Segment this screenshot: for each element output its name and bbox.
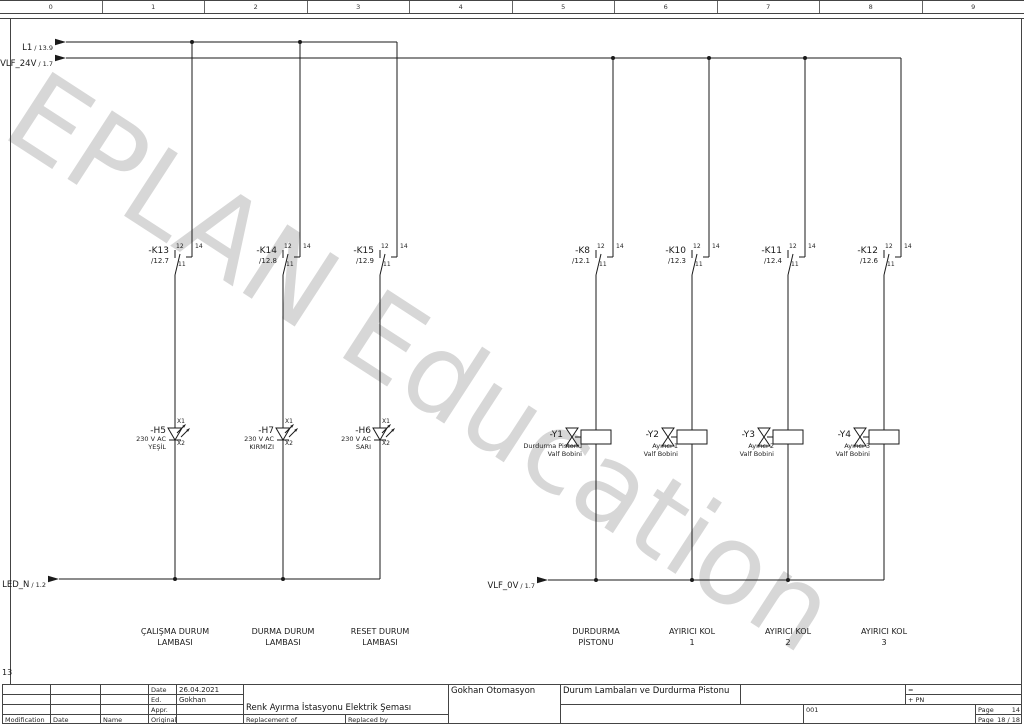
ruler-segment: 5 xyxy=(513,1,616,13)
valve-y1: -Y1 Durdurma Pistonu Valf Bobini xyxy=(493,429,603,465)
revision-cell xyxy=(100,684,148,694)
frame-top-line xyxy=(0,18,1024,19)
ruler-number: 8 xyxy=(869,3,873,11)
terminal-x2: X2 xyxy=(177,440,185,447)
valve-function-line2: Valf Bobini xyxy=(781,451,870,459)
company-name: Gokhan Otomasyon xyxy=(448,684,560,724)
function-label-reset: RESET DURUM LAMBASI xyxy=(310,626,450,648)
cross-reference: /12.9 xyxy=(300,257,374,265)
ed-label: Ed. xyxy=(148,694,176,704)
device-tag: -K14 xyxy=(203,247,277,256)
device-tag: -K15 xyxy=(300,247,374,256)
terminal-12: 12 xyxy=(597,243,605,250)
function-line2: 3 xyxy=(814,637,954,648)
terminal-11: 11 xyxy=(286,261,294,268)
original-label: Original xyxy=(148,714,176,724)
ruler-segment: 6 xyxy=(615,1,718,13)
page-value: 14 xyxy=(1012,706,1020,714)
potential-ref: / 1.2 xyxy=(31,581,46,589)
function-line1: AYIRICI KOL xyxy=(814,626,954,637)
ruler-segment: 9 xyxy=(923,1,1024,13)
valve-function-line2: Valf Bobini xyxy=(685,451,774,459)
lamp-label-block: -H7 230 V AC KIRMIZI xyxy=(204,426,274,451)
sheet-number: 001 xyxy=(803,704,975,724)
lamp-h5: -H5 230 V AC YEŞİL X1 X2 xyxy=(96,418,206,458)
contact-k14: -K14 /12.8 12 14 11 xyxy=(203,243,313,283)
ruler-segment: 3 xyxy=(308,1,411,13)
lamp-color: SARI xyxy=(301,444,371,452)
date-header: Date xyxy=(50,714,100,724)
drawing-title: Durum Lambaları ve Durdurma Pistonu xyxy=(560,684,740,704)
replaced-by-label: Replaced by xyxy=(345,714,448,724)
eplan-watermark: EPLAN Education xyxy=(0,48,858,678)
device-tag: -K12 xyxy=(804,247,878,256)
revision-cell xyxy=(100,704,148,714)
original-value xyxy=(176,714,243,724)
appr-value xyxy=(176,704,243,714)
ruler-number: 4 xyxy=(459,3,463,11)
potential-name: VLF_24V xyxy=(0,59,36,69)
ed-value: Gokhan xyxy=(176,694,243,704)
cross-reference: /12.7 xyxy=(95,257,169,265)
cross-reference: /12.6 xyxy=(804,257,878,265)
terminal-11: 11 xyxy=(887,261,895,268)
terminal-11: 11 xyxy=(383,261,391,268)
empty-cell xyxy=(560,704,805,724)
cross-reference: /12.4 xyxy=(708,257,782,265)
terminal-x1: X1 xyxy=(382,418,390,425)
valve-function: Ayırıcı 3 Valf Bobini xyxy=(781,443,870,458)
rail-label-ledn: LED_N/ 1.2 xyxy=(0,572,46,591)
revision-cell xyxy=(100,694,148,704)
valve-y2: -Y2 Ayırıcı 1 Valf Bobini xyxy=(589,429,699,465)
page-label: Page xyxy=(978,716,994,724)
terminal-12: 12 xyxy=(885,243,893,250)
appr-label: Appr. xyxy=(148,704,176,714)
lamp-label-block: -H6 230 V AC SARI xyxy=(301,426,371,451)
ruler-number: 1 xyxy=(151,3,155,11)
frame-right-line xyxy=(1021,18,1022,684)
eplan-schematic-page: EPLAN Education 0 1 2 3 4 5 6 7 8 9 xyxy=(0,0,1024,724)
contact-k15: -K15 /12.9 12 14 11 xyxy=(300,243,410,283)
terminal-11: 11 xyxy=(695,261,703,268)
terminal-14: 14 xyxy=(904,243,912,250)
ruler-segment: 4 xyxy=(410,1,513,13)
device-tag: -Y1 xyxy=(493,430,563,440)
column-ruler: 0 1 2 3 4 5 6 7 8 9 xyxy=(0,0,1024,14)
structure-eq: = xyxy=(905,684,1022,694)
terminal-11: 11 xyxy=(599,261,607,268)
device-tag: -K13 xyxy=(95,247,169,256)
revision-cell xyxy=(50,684,100,694)
page-nav-number: 13 xyxy=(2,668,12,677)
function-label-ayirici3: AYIRICI KOL 3 xyxy=(814,626,954,648)
contact-k10: -K10 /12.3 12 14 11 xyxy=(612,243,722,283)
date-label: Date xyxy=(148,684,176,694)
wires xyxy=(59,42,901,580)
cross-reference: /12.1 xyxy=(516,257,590,265)
device-tag: -Y4 xyxy=(781,430,851,440)
terminal-14: 14 xyxy=(400,243,408,250)
device-tag: -K8 xyxy=(516,247,590,256)
terminal-x2: X2 xyxy=(382,440,390,447)
page-total-value: 18 / 18 xyxy=(997,716,1020,724)
contact-k11: -K11 /12.4 12 14 11 xyxy=(708,243,818,283)
valve-y3: -Y3 Ayırıcı 2 Valf Bobini xyxy=(685,429,795,465)
potential-ref: / 1.7 xyxy=(520,582,535,590)
terminal-12: 12 xyxy=(789,243,797,250)
valve-function-line2: Valf Bobini xyxy=(589,451,678,459)
ruler-number: 7 xyxy=(766,3,770,11)
lamp-h6: -H6 230 V AC SARI X1 X2 xyxy=(301,418,411,458)
modification-header: Modification xyxy=(2,714,50,724)
structure-plus: + PN xyxy=(905,694,1022,704)
ruler-segment: 1 xyxy=(103,1,206,13)
ruler-segment: 2 xyxy=(205,1,308,13)
rail-label-vlf24v: VLF_24V/ 1.7 xyxy=(0,51,53,70)
potential-name: LED_N xyxy=(2,580,29,590)
ruler-number: 0 xyxy=(49,3,53,11)
ruler-number: 9 xyxy=(971,3,975,11)
terminal-x1: X1 xyxy=(285,418,293,425)
cross-reference: /12.3 xyxy=(612,257,686,265)
terminal-11: 11 xyxy=(178,261,186,268)
page-cell: Page 14 xyxy=(975,704,1022,714)
device-tag: -K10 xyxy=(612,247,686,256)
ruler-number: 5 xyxy=(561,3,565,11)
replacement-of-label: Replacement of xyxy=(243,714,345,724)
title-block: Date 26.04.2021 Renk Ayırma İstasyonu El… xyxy=(2,684,1022,724)
revision-cell xyxy=(50,694,100,704)
lamp-h7: -H7 230 V AC KIRMIZI X1 X2 xyxy=(204,418,314,458)
rail-label-vlf0v: VLF_0V/ 1.7 xyxy=(459,573,535,592)
revision-cell xyxy=(50,704,100,714)
contact-k13: -K13 /12.7 12 14 11 xyxy=(95,243,205,283)
function-line2: LAMBASI xyxy=(310,637,450,648)
valve-function: Durdurma Pistonu Valf Bobini xyxy=(493,443,582,458)
page-label: Page xyxy=(978,706,994,714)
contact-k12: -K12 /12.6 12 14 11 xyxy=(804,243,914,283)
revision-cell xyxy=(2,704,50,714)
ruler-segment: 8 xyxy=(820,1,923,13)
device-tag: -K11 xyxy=(708,247,782,256)
page-total-cell: Page 18 / 18 xyxy=(975,714,1022,724)
potential-name: VLF_0V xyxy=(487,581,518,591)
empty-cell xyxy=(740,684,905,704)
terminal-12: 12 xyxy=(693,243,701,250)
lamp-color: YEŞİL xyxy=(96,444,166,452)
date-value: 26.04.2021 xyxy=(176,684,243,694)
function-line1: RESET DURUM xyxy=(310,626,450,637)
ruler-number: 3 xyxy=(356,3,360,11)
contact-k8: -K8 /12.1 12 14 11 xyxy=(516,243,626,283)
ruler-number: 6 xyxy=(664,3,668,11)
device-tag: -Y2 xyxy=(589,430,659,440)
valve-function-line2: Valf Bobini xyxy=(493,451,582,459)
ruler-segment: 0 xyxy=(0,1,103,13)
valve-function: Ayırıcı 1 Valf Bobini xyxy=(589,443,678,458)
cross-reference: /12.8 xyxy=(203,257,277,265)
terminal-14: 14 xyxy=(195,243,203,250)
terminal-12: 12 xyxy=(176,243,184,250)
valve-y4: -Y4 Ayırıcı 3 Valf Bobini xyxy=(781,429,891,465)
potential-ref: / 1.7 xyxy=(38,60,53,68)
revision-cell xyxy=(2,684,50,694)
name-header: Name xyxy=(100,714,148,724)
ruler-segment: 7 xyxy=(718,1,821,13)
ruler-number: 2 xyxy=(254,3,258,11)
lamp-label-block: -H5 230 V AC YEŞİL xyxy=(96,426,166,451)
terminal-x1: X1 xyxy=(177,418,185,425)
valve-function: Ayırıcı 2 Valf Bobini xyxy=(685,443,774,458)
terminal-12: 12 xyxy=(284,243,292,250)
device-tag: -Y3 xyxy=(685,430,755,440)
lamp-color: KIRMIZI xyxy=(204,444,274,452)
revision-cell xyxy=(2,694,50,704)
project-title: Renk Ayırma İstasyonu Elektrik Şeması xyxy=(243,684,448,714)
terminal-12: 12 xyxy=(381,243,389,250)
terminal-x2: X2 xyxy=(285,440,293,447)
terminal-11: 11 xyxy=(791,261,799,268)
